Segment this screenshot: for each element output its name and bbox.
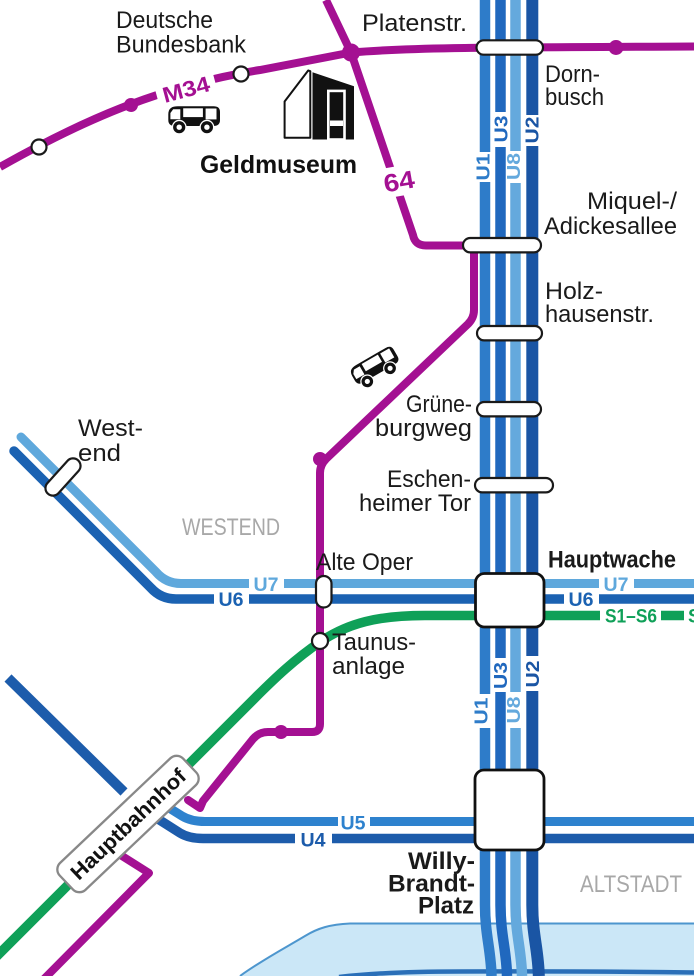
svg-text:Adickesallee: Adickesallee [544,213,677,240]
svg-text:Eschen-: Eschen- [387,466,471,493]
svg-text:U3: U3 [491,662,511,689]
svg-text:Taunus-: Taunus- [332,629,416,656]
svg-text:Bundesbank: Bundesbank [116,32,247,59]
svg-text:burgweg: burgweg [375,415,472,442]
svg-text:anlage: anlage [332,653,405,680]
svg-text:S1: S1 [688,607,694,628]
svg-text:U4: U4 [301,831,326,852]
svg-text:U2: U2 [523,661,543,688]
svg-text:end: end [78,440,121,467]
svg-text:Hauptwache: Hauptwache [548,547,676,574]
svg-text:U1: U1 [474,154,494,181]
svg-text:U8: U8 [504,153,524,180]
svg-text:64: 64 [381,165,416,198]
svg-text:busch: busch [545,84,604,111]
svg-text:Grüne-: Grüne- [406,391,472,418]
svg-text:U7: U7 [254,575,279,596]
svg-text:Alte Oper: Alte Oper [316,549,413,576]
svg-text:heimer Tor: heimer Tor [359,490,471,517]
svg-text:U5: U5 [341,814,366,835]
svg-text:hausenstr.: hausenstr. [545,301,654,328]
svg-text:U2: U2 [523,117,543,144]
svg-text:U3: U3 [492,116,512,143]
svg-text:S1–S6: S1–S6 [605,607,657,628]
svg-text:U1: U1 [472,698,492,725]
svg-text:Deutsche: Deutsche [116,7,213,34]
svg-text:WESTEND: WESTEND [182,514,280,541]
svg-text:U7: U7 [604,575,629,596]
svg-text:U6: U6 [569,590,594,611]
svg-text:West-: West- [78,415,143,442]
svg-text:Geldmuseum: Geldmuseum [200,151,357,179]
svg-text:U6: U6 [219,590,244,611]
svg-text:Platz: Platz [418,893,474,920]
svg-text:U8: U8 [504,697,524,724]
svg-text:Miquel-/: Miquel-/ [587,188,677,215]
svg-text:ALTSTADT: ALTSTADT [580,871,682,898]
svg-text:Platenstr.: Platenstr. [362,10,467,37]
